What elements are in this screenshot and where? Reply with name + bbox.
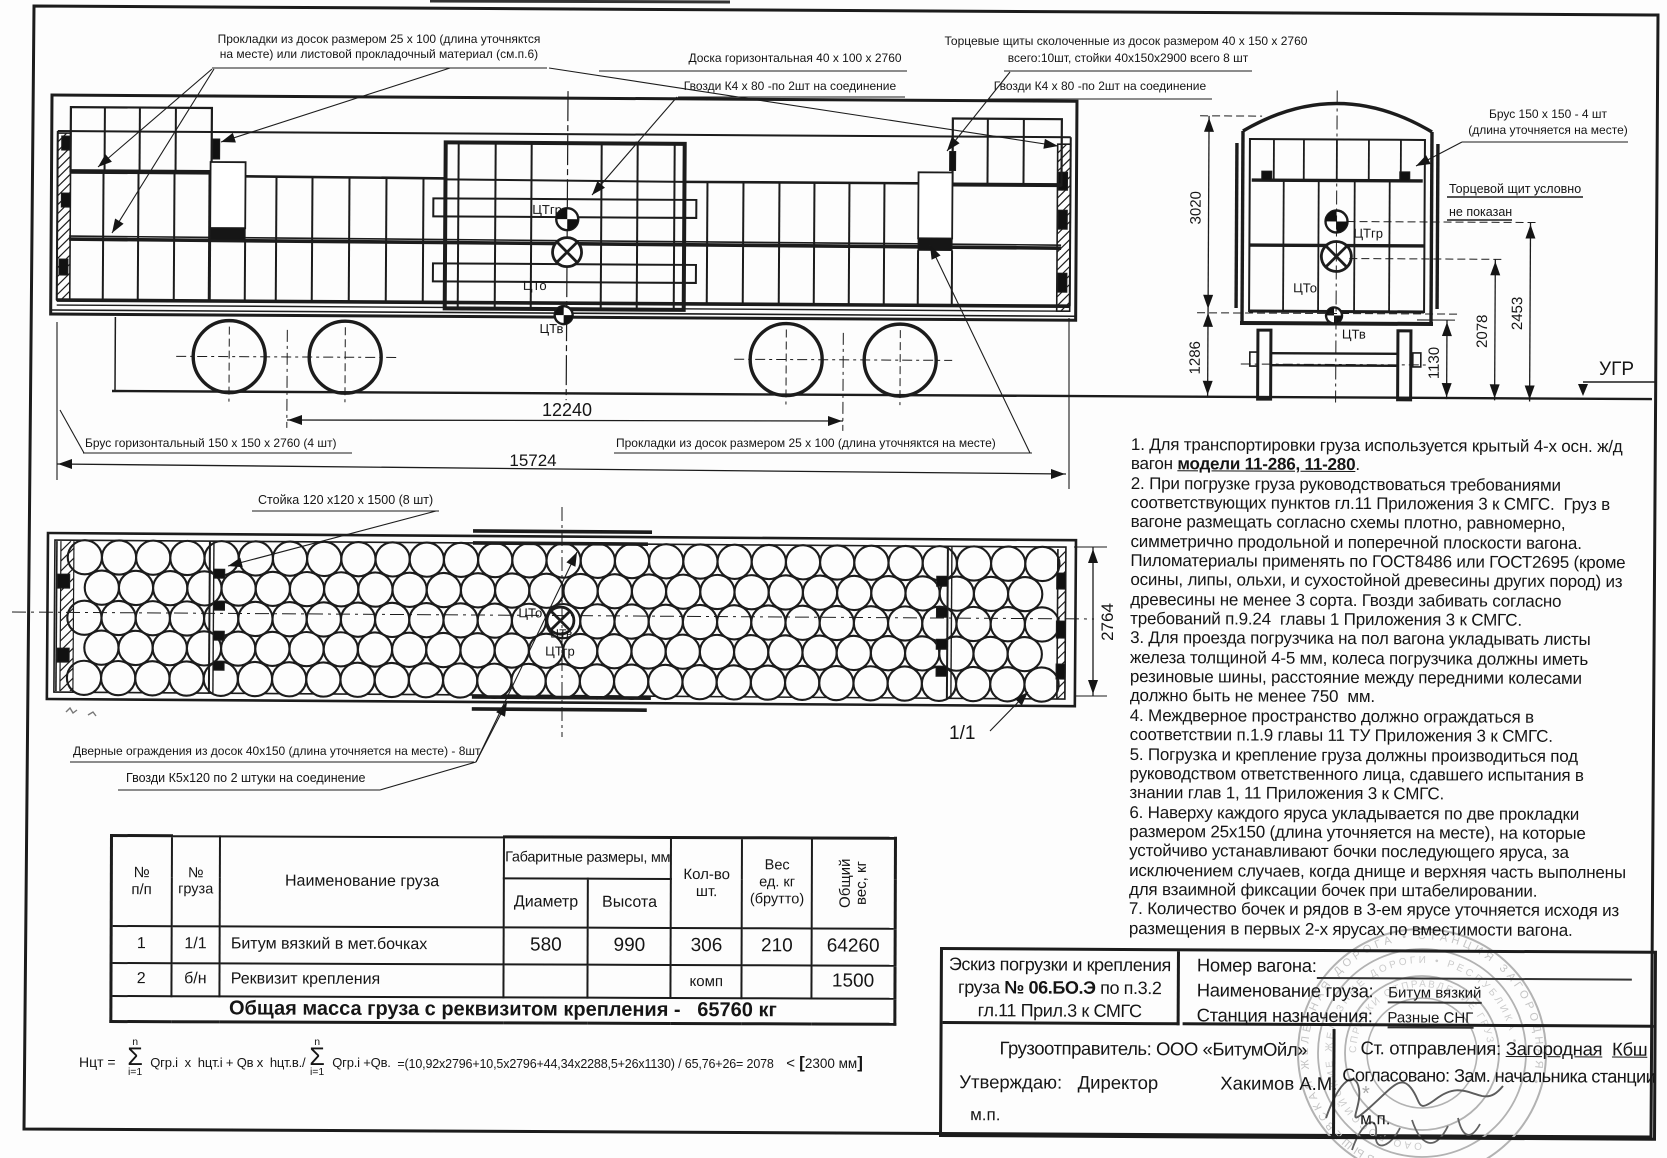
svg-text:Гвозди К4 х 80 -по 2шт на соед: Гвозди К4 х 80 -по 2шт на соединение — [994, 79, 1207, 93]
svg-text:Гвозди К5х120 по 2 штуки на со: Гвозди К5х120 по 2 штуки на соединение — [126, 771, 365, 785]
svg-text:ЦТо: ЦТо — [523, 278, 547, 293]
svg-text:Торцевой щит условно: Торцевой щит условно — [1449, 182, 1581, 196]
svg-text:ЦТгр: ЦТгр — [545, 643, 575, 658]
svg-text:не показан: не показан — [1449, 205, 1512, 219]
svg-text:Брус 150 х 150 - 4 шт: Брус 150 х 150 - 4 шт — [1489, 107, 1608, 121]
svg-text:ЦТв: ЦТв — [540, 321, 564, 336]
svg-text:ЦТгр: ЦТгр — [532, 202, 562, 217]
svg-text:ЦТв: ЦТв — [1342, 327, 1366, 342]
svg-text:Дверные ограждения из досок 40: Дверные ограждения из досок 40х150 (длин… — [73, 744, 481, 758]
svg-text:2764: 2764 — [1098, 603, 1117, 641]
svg-text:2453: 2453 — [1509, 297, 1526, 330]
svg-text:ЦТо: ЦТо — [1293, 280, 1317, 295]
svg-text:УГР: УГР — [1599, 359, 1634, 380]
svg-text:1130: 1130 — [1426, 347, 1443, 379]
svg-text:ЦТо: ЦТо — [518, 605, 542, 620]
svg-text:Брус горизонтальный 150 х 150: Брус горизонтальный 150 х 150 х 2760 (4 … — [85, 436, 337, 450]
svg-text:на месте) или листовой проклад: на месте) или листовой прокладочный мате… — [220, 47, 538, 61]
svg-text:всего:10шт, стойки 40х150х2900: всего:10шт, стойки 40х150х2900 всего 8 ш… — [1008, 51, 1249, 65]
svg-text:(длина уточняется на месте): (длина уточняется на месте) — [1468, 123, 1628, 137]
svg-text:Прокладки из досок размером 25: Прокладки из досок размером 25 х 100 (дл… — [616, 436, 996, 450]
svg-text:1286: 1286 — [1187, 341, 1204, 374]
svg-text:Торцевые щиты сколоченные из д: Торцевые щиты сколоченные из досок разме… — [945, 34, 1308, 48]
svg-text:Доска горизонтальная 40 х 100: Доска горизонтальная 40 х 100 х 2760 — [688, 51, 901, 65]
svg-text:1/1: 1/1 — [949, 723, 975, 744]
svg-text:15724: 15724 — [509, 451, 556, 470]
svg-text:12240: 12240 — [542, 400, 592, 420]
svg-text:Прокладки из досок размером 25: Прокладки из досок размером 25 х 100 (дл… — [218, 32, 541, 46]
svg-text:ЦТгр: ЦТгр — [1353, 226, 1383, 241]
svg-text:Стойка 120 х120 х 1500 (8 шт): Стойка 120 х120 х 1500 (8 шт) — [258, 493, 433, 507]
svg-text:Гвозди К4 х 80 -по 2шт на соед: Гвозди К4 х 80 -по 2шт на соединение — [684, 79, 897, 93]
svg-text:3020: 3020 — [1188, 191, 1205, 224]
svg-text:ЦТв: ЦТв — [550, 627, 572, 641]
svg-text:2078: 2078 — [1474, 315, 1491, 348]
